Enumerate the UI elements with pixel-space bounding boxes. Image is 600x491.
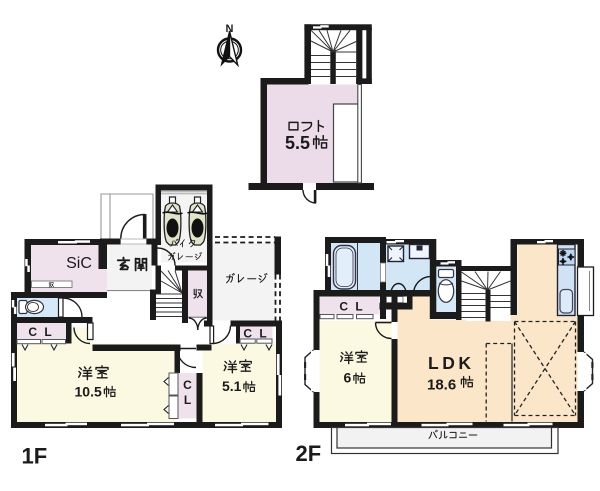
svg-text:18.6: 18.6 bbox=[427, 377, 456, 394]
svg-text:SiC: SiC bbox=[66, 255, 92, 272]
svg-text:10.5: 10.5 bbox=[75, 384, 102, 400]
svg-text:1F: 1F bbox=[22, 444, 48, 469]
svg-text:5.5: 5.5 bbox=[285, 133, 310, 153]
svg-text:LDK: LDK bbox=[428, 353, 474, 373]
svg-text:C L: C L bbox=[243, 327, 268, 341]
svg-text:2F: 2F bbox=[296, 441, 322, 466]
svg-text:6: 6 bbox=[344, 370, 352, 386]
svg-text:C L: C L bbox=[28, 325, 53, 339]
svg-text:5.1: 5.1 bbox=[222, 378, 242, 394]
svg-text:C L: C L bbox=[339, 300, 364, 314]
svg-text:L: L bbox=[184, 393, 191, 407]
svg-text:C: C bbox=[183, 378, 192, 392]
